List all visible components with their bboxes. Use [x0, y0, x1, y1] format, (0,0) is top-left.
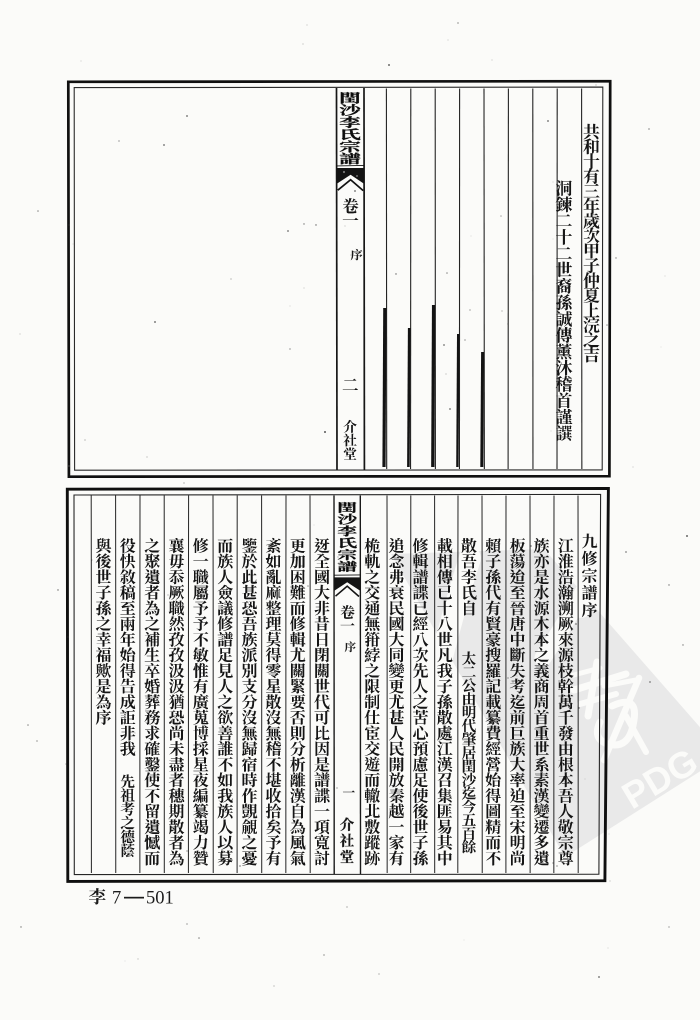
svg-text:501: 501: [146, 889, 174, 909]
svg-text:7: 7: [112, 889, 121, 909]
